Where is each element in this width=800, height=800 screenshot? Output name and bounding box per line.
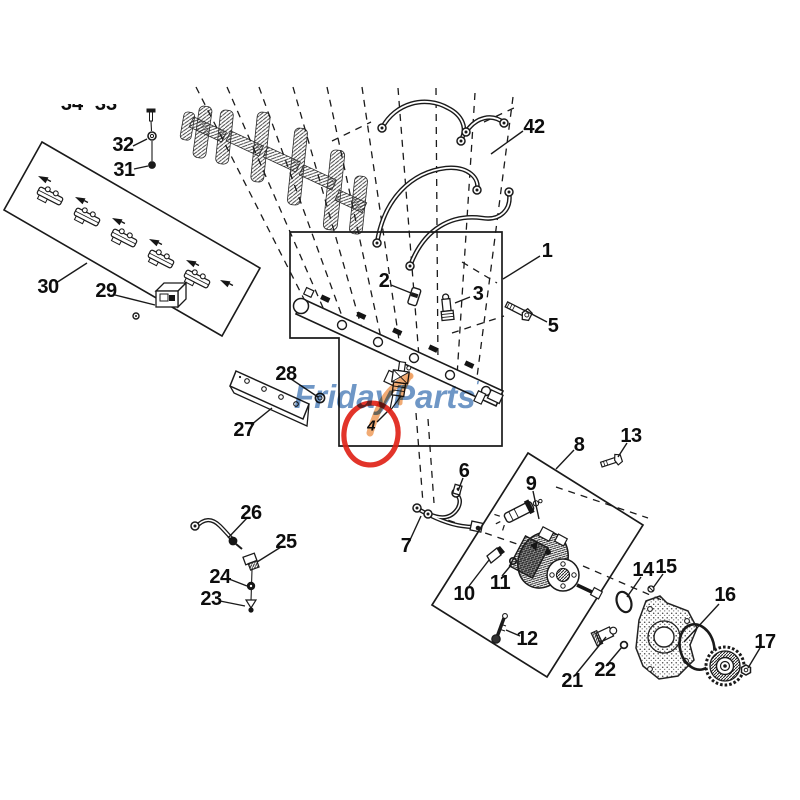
- watermark-text: FridayParts: [294, 378, 476, 415]
- watermark-trademark: ': [476, 378, 479, 393]
- watermark-logo: FridayParts': [294, 378, 479, 416]
- parts-diagram-page: FridayParts' 123456789101112131415161721…: [0, 0, 800, 800]
